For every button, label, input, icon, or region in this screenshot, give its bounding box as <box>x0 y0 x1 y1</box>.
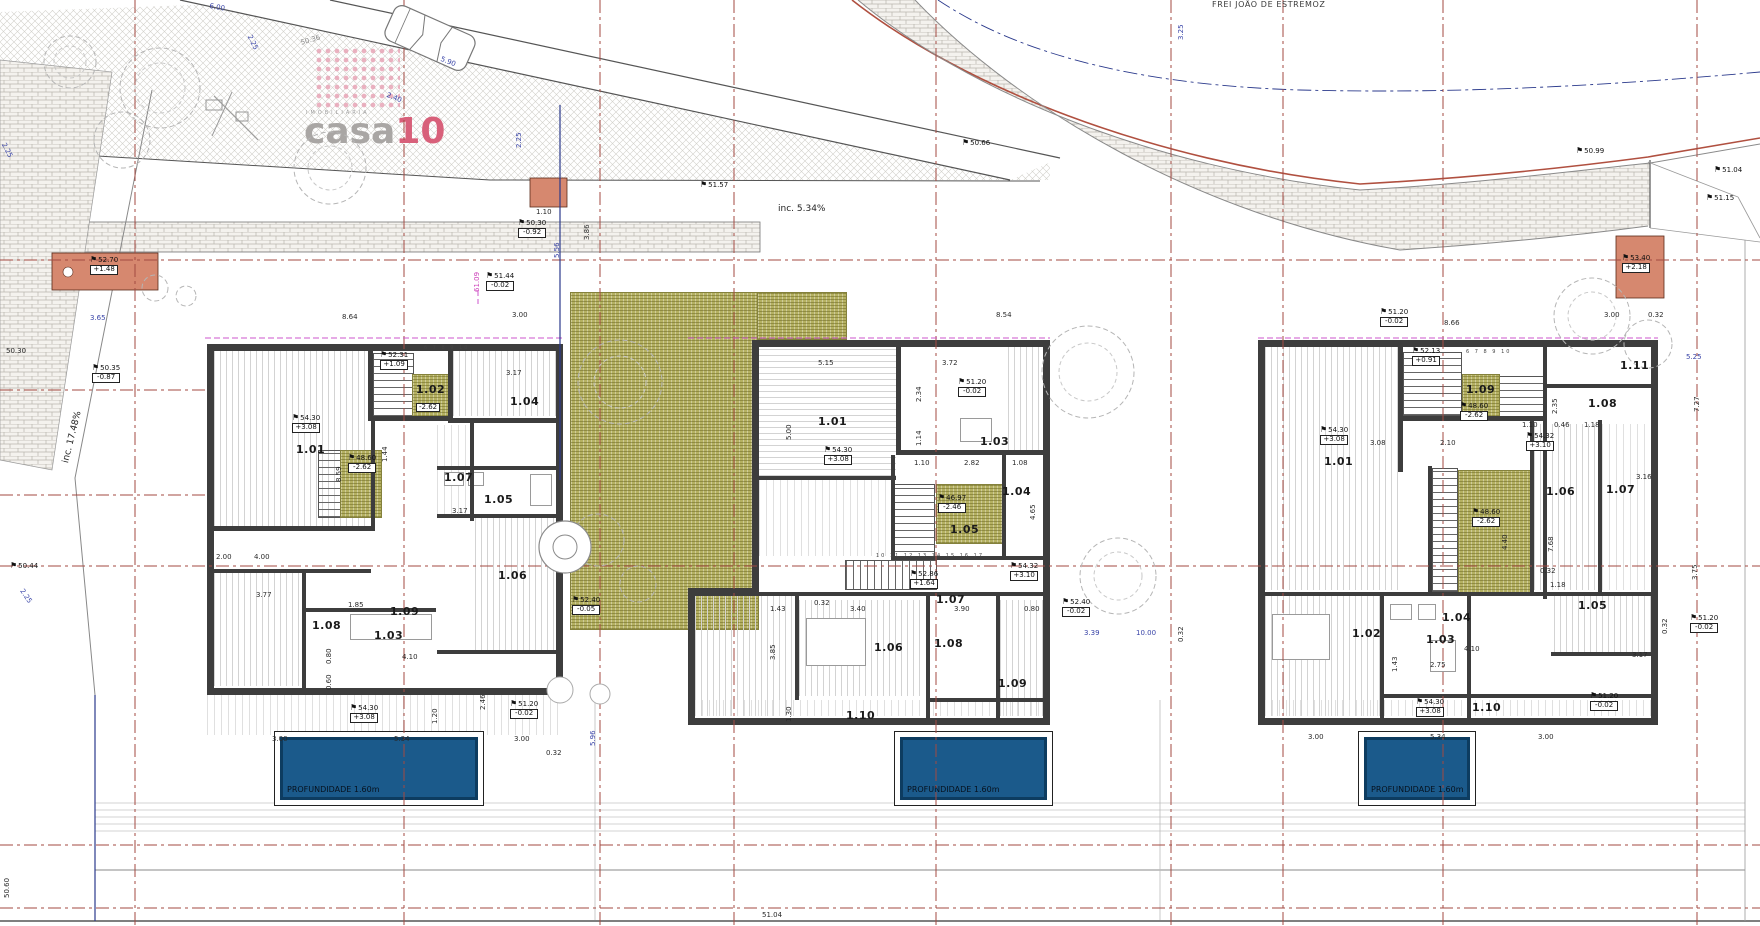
dim-label: 61.09 <box>474 272 481 292</box>
dim-label: 0.32 <box>1648 312 1664 319</box>
dim-label: 5.15 <box>818 360 834 367</box>
dim-label: 0.80 <box>326 648 333 664</box>
elevation-marker: ⚑52.86+1.64 <box>910 570 938 589</box>
elevation-marker: ⚑54.30+3.08 <box>1416 698 1444 717</box>
room-label: 1.08 <box>1588 398 1617 410</box>
dim-label: 1.08 <box>1012 460 1028 467</box>
stepping-circle <box>590 684 610 704</box>
dim-label: 3.85 <box>770 644 777 660</box>
dim-label: 3.00 <box>1538 734 1554 741</box>
elevation-marker: ⚑51.20-0.02 <box>510 700 538 719</box>
trees <box>44 36 1672 614</box>
floor-plan-canvas: PROFUNDIDADE 1.60m PROFUNDIDADE 1.6 <box>0 0 1760 926</box>
elevation-marker: ⚑51.44-0.02 <box>486 272 514 291</box>
dim-label: 2.82 <box>964 460 980 467</box>
room-label: 1.09 <box>1466 384 1495 396</box>
dim-label: 5.96 <box>590 730 597 746</box>
room-label: 1.07 <box>936 594 965 606</box>
room-label: 1.06 <box>874 642 903 654</box>
room-label: 1.01 <box>1324 456 1353 468</box>
dim-label: 1.10 <box>1522 422 1538 429</box>
elevation-marker: ⚑51.04 <box>1714 166 1742 174</box>
dim-label: 1.18 <box>1550 582 1566 589</box>
dim-label: 3.17 <box>506 370 522 377</box>
dim-label: 3.08 <box>1370 440 1386 447</box>
elevation-marker: ⚑51.20-0.02 <box>1380 308 1408 327</box>
dim-label: 3.86 <box>584 224 591 240</box>
room-label: 1.03 <box>980 436 1009 448</box>
elevation-marker: ⚑50.99 <box>1576 147 1604 155</box>
elevation-marker: ⚑51.20-0.02 <box>958 378 986 397</box>
setback-lines-magenta <box>205 290 1658 338</box>
annotation-layer <box>0 0 1760 926</box>
dim-label: 7.68 <box>1548 536 1555 552</box>
slope-label: inc. 5.34% <box>778 205 825 214</box>
room-label: 1.04 <box>510 396 539 408</box>
dim-label: 4.10 <box>402 654 418 661</box>
room-label: 1.03 <box>1426 634 1455 646</box>
dim-label: 4.65 <box>1030 504 1037 520</box>
elevation-marker: ⚑48.60-2.62 <box>1472 508 1500 527</box>
dim-label: 3.00 <box>1604 312 1620 319</box>
dim-label: 0.32 <box>1178 626 1185 642</box>
dim-label: 10.00 <box>1136 630 1156 637</box>
elevation-marker: ⚑52.31+1.09 <box>380 351 408 370</box>
dim-label: 8.54 <box>996 312 1012 319</box>
dim-label: 0.32 <box>814 600 830 607</box>
room-label: 1.09 <box>998 678 1027 690</box>
car <box>382 3 478 74</box>
room-label: 1.03 <box>374 630 403 642</box>
elevation-marker: ⚑51.57 <box>700 181 728 189</box>
elevation-marker: ⚑50.44 <box>10 562 38 570</box>
room-label: 1.11 <box>1620 360 1649 372</box>
dim-label: 3.00 <box>514 736 530 743</box>
room-label: 1.05 <box>1578 600 1607 612</box>
room-label: 1.07 <box>444 472 473 484</box>
dim-label: 6 7 8 9 10 <box>1466 350 1511 355</box>
room-label: 1.05 <box>950 524 979 536</box>
elevation-marker: ⚑54.30+3.08 <box>1320 426 1348 445</box>
elevation-marker: ⚑53.40+2.18 <box>1622 254 1650 273</box>
room-label: 1.01 <box>818 416 847 428</box>
dim-label: 4.40 <box>1502 534 1509 550</box>
dim-label: 5.00 <box>786 424 793 440</box>
dim-label: 10 11 12 13 14 15 16 17 <box>876 554 984 559</box>
room-label: 1.08 <box>934 638 963 650</box>
room-label: 1.10 <box>1472 702 1501 714</box>
elevation-marker: ⚑50.66 <box>962 139 990 147</box>
dim-label: 1.18 <box>1584 422 1600 429</box>
dim-label: 2.10 <box>1440 440 1456 447</box>
dim-label: 2.75 <box>1430 662 1446 669</box>
dim-label: 2.34 <box>916 386 923 402</box>
dim-label: 0.80 <box>1024 606 1040 613</box>
dim-label: 3.75 <box>1692 564 1699 580</box>
elevation-marker: ⚑50.30-0.92 <box>518 219 546 238</box>
dim-label: 50.30 <box>6 348 26 355</box>
dim-label: 51.04 <box>762 912 782 919</box>
dim-label: 5.34 <box>1430 734 1446 741</box>
dim-label: 3.77 <box>256 592 272 599</box>
dim-label: 1.85 <box>348 602 364 609</box>
stepping-circle <box>547 677 573 703</box>
elevation-marker: ⚑46.97-2.46 <box>938 494 966 513</box>
dim-label: 50.60 <box>4 878 11 898</box>
elevation-marker: ⚑52.70+1.48 <box>90 256 118 275</box>
room-label: 1.07 <box>1606 484 1635 496</box>
dim-label: 3.00 <box>512 312 528 319</box>
elevation-marker: ⚑52.40-0.05 <box>572 596 600 615</box>
elevation-marker: ⚑54.30+3.08 <box>824 446 852 465</box>
dim-label: 1.10 <box>914 460 930 467</box>
dim-label: 3.72 <box>942 360 958 367</box>
room-label: 1.06 <box>1546 486 1575 498</box>
dim-label: 0.32 <box>1540 568 1556 575</box>
elevation-marker: ⚑54.30+3.08 <box>350 704 378 723</box>
room-label: 1.09 <box>390 606 419 618</box>
dim-label: 1.20 <box>432 708 439 724</box>
dim-label: 8.59 <box>336 466 343 482</box>
elevation-marker: ⚑54.30+3.08 <box>292 414 320 433</box>
elevation-marker: ⚑52.40-0.02 <box>1062 598 1090 617</box>
elevation-marker: ⚑54.32+3.10 <box>1010 562 1038 581</box>
elevation-marker: ⚑51.15 <box>1706 194 1734 202</box>
elevation-marker: ⚑48.60-2.62 <box>348 454 376 473</box>
elevation-marker: -2.62 <box>416 402 440 412</box>
dim-label: 2.25 <box>516 132 523 148</box>
dim-label: 2.46 <box>480 694 487 710</box>
dim-label: 5.56 <box>554 242 561 258</box>
dim-label: 4.00 <box>254 554 270 561</box>
dim-label: 3.39 <box>1084 630 1100 637</box>
elevation-marker: ⚑54.32+3.10 <box>1526 432 1554 451</box>
dim-label: 5.25 <box>1686 354 1702 361</box>
elevation-marker: ⚑48.60-2.62 <box>1460 402 1488 421</box>
dim-label: 0.60 <box>326 674 333 690</box>
dim-label: 5.34 <box>394 736 410 743</box>
dim-label: 8.64 <box>342 314 358 321</box>
room-label: 1.04 <box>1442 612 1471 624</box>
dim-label: 3.90 <box>954 606 970 613</box>
modular-grid-lines <box>0 0 1760 926</box>
dim-label: 3.17 <box>1632 652 1648 659</box>
room-label: 1.04 <box>1002 486 1031 498</box>
elevation-marker: ⚑50.35-0.87 <box>92 364 120 383</box>
property-lines-navy <box>95 105 560 921</box>
elevation-marker: ⚑52.13+0.91 <box>1412 347 1440 366</box>
dim-label: 2.35 <box>1552 398 1559 414</box>
dim-label: 7.27 <box>1694 396 1701 412</box>
dim-label: 3.65 <box>90 315 106 322</box>
room-label: 1.02 <box>416 384 445 396</box>
dim-label: 1.43 <box>770 606 786 613</box>
street-name-label: FREI JOÃO DE ESTREMOZ <box>1212 1 1325 9</box>
dim-label: 0.32 <box>1662 618 1669 634</box>
dim-label: 1.30 <box>786 706 793 722</box>
dim-label: 6 7 8 9 10 <box>424 346 469 351</box>
room-label: 1.10 <box>846 710 875 722</box>
dim-label: 3.00 <box>272 736 288 743</box>
dim-label: 1.14 <box>916 430 923 446</box>
dim-label: 3.00 <box>1308 734 1324 741</box>
elevation-marker: ⚑51.20-0.02 <box>1590 692 1618 711</box>
room-label: 1.05 <box>484 494 513 506</box>
dim-label: 3.40 <box>850 606 866 613</box>
dim-label: 2.00 <box>216 554 232 561</box>
dim-label: 1.43 <box>1392 656 1399 672</box>
dim-label: 4.10 <box>1464 646 1480 653</box>
dim-label: 3.25 <box>1178 24 1185 40</box>
room-label: 1.08 <box>312 620 341 632</box>
elevation-marker: ⚑51.20-0.02 <box>1690 614 1718 633</box>
dim-label: 0.46 <box>1554 422 1570 429</box>
room-label: 1.01 <box>296 444 325 456</box>
dim-label: 1.44 <box>382 446 389 462</box>
dim-label: 0.32 <box>546 750 562 757</box>
dim-label: 3.16 <box>1636 474 1652 481</box>
room-label: 1.02 <box>1352 628 1381 640</box>
room-label: 1.06 <box>498 570 527 582</box>
dim-label: 8.66 <box>1444 320 1460 327</box>
dim-label: 3.17 <box>452 508 468 515</box>
dim-label: 1.10 <box>536 209 552 216</box>
